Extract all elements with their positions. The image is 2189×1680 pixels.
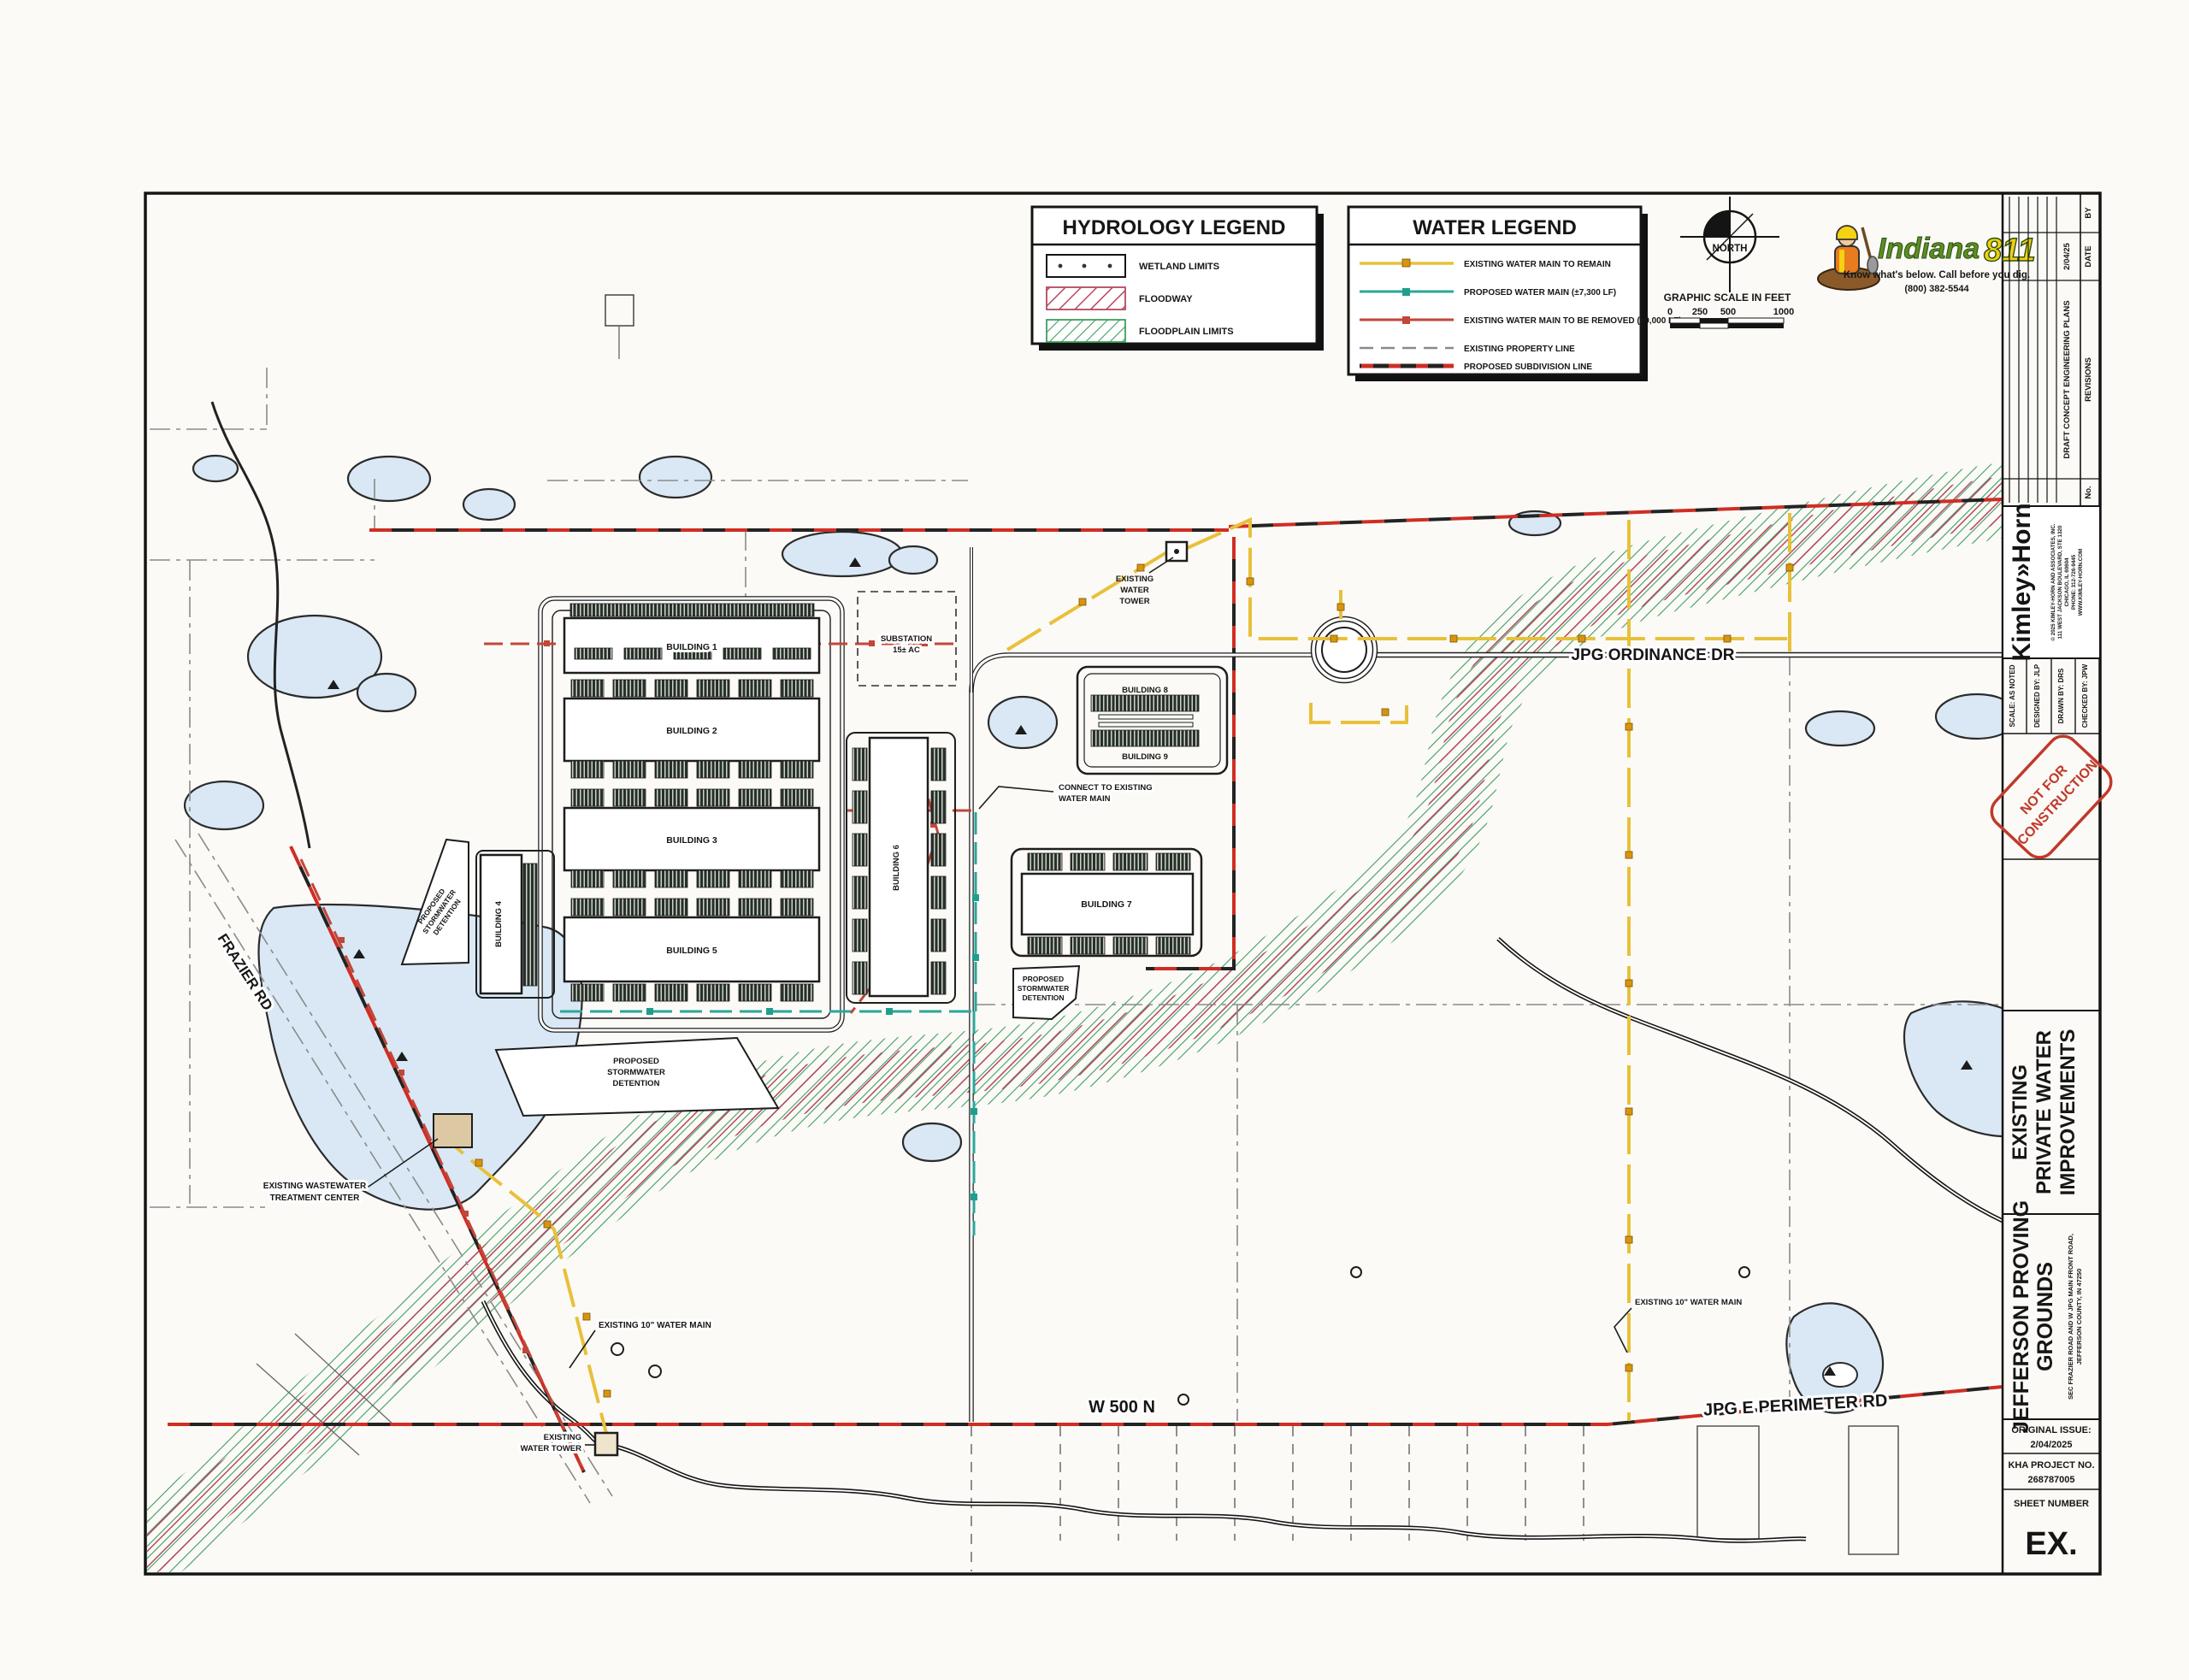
buildings [402, 542, 1749, 1455]
building-3-label: BUILDING 3 [666, 835, 717, 846]
connect-label-line1: CONNECT TO EXISTING [1059, 783, 1153, 793]
project-address-line2: JEFFERSON COUNTY, IN 47250 [2075, 1269, 2083, 1365]
project-name-line2: GROUNDS [2033, 1262, 2057, 1371]
scale-tick-0: 0 [1667, 307, 1673, 317]
scale-tick-500: 500 [1720, 307, 1736, 317]
revisions-date-header: DATE [2084, 245, 2093, 267]
wastewater-plant-symbol [434, 1114, 472, 1147]
detention-south-line3: DETENTION [613, 1079, 660, 1088]
sheet-title-line1: EXISTING [2009, 1064, 2032, 1160]
indiana811-phone: (800) 382-5544 [1904, 284, 1969, 294]
firm-logo: Kimley»Horn [2008, 503, 2036, 661]
substation-label-line2: 15± AC [893, 645, 920, 655]
field-checked: CHECKED BY: JPW [2081, 663, 2089, 728]
w500n-label: W 500 N [1089, 1398, 1155, 1417]
water-tower-bottom-symbol [595, 1433, 617, 1455]
wastewater-label-line2: TREATMENT CENTER [270, 1194, 361, 1203]
not-for-construction-stamp: NOT FOR CONSTRUCTION [1985, 730, 2117, 864]
firm-copyright: © 2025 KIMLEY-HORN AND ASSOCIATES, INC. [2050, 523, 2056, 640]
graphic-scale: GRAPHIC SCALE IN FEET 0 250 500 1000 [1664, 292, 1795, 328]
existing-10in-main-left-label: EXISTING 10" WATER MAIN [599, 1321, 711, 1330]
firm-web: WWW.KIMLEY-HORN.COM [2078, 549, 2084, 616]
water-item-subdivision: PROPOSED SUBDIVISION LINE [1464, 363, 1592, 372]
hydrology-legend-title: HYDROLOGY LEGEND [1063, 216, 1286, 239]
project-address-line1: SEC FRAZIER ROAD AND W JPG MAIN FRONT RO… [2067, 1234, 2074, 1400]
field-drawn: DRAWN BY: DRS [2057, 668, 2065, 723]
indiana811-brand: Indiana [1878, 233, 1980, 265]
water-item-proposed: PROPOSED WATER MAIN (±7,300 LF) [1464, 288, 1616, 298]
firm-address1: 111 WEST JACKSON BOULEVARD, STE 1320 [2057, 525, 2063, 639]
revisions-header: REVISIONS [2084, 357, 2093, 402]
detention-south-line1: PROPOSED [613, 1057, 659, 1066]
plan-sheet: BUILDING 1 BUILDING 2 BUILDING 3 BUILDIN… [0, 0, 2189, 1680]
project-name: JEFFERSON PROVING GROUNDS SEC FRAZIER RO… [2009, 1200, 2083, 1433]
field-scale: SCALE: AS NOTED [2009, 664, 2016, 727]
building-6-label: BUILDING 6 [892, 845, 901, 891]
building-5-label: BUILDING 5 [666, 946, 717, 956]
hydrology-item-floodway: FLOODWAY [1139, 294, 1193, 304]
sheet-title: EXISTING PRIVATE WATER IMPROVEMENTS [2009, 1029, 2080, 1196]
building-9-label: BUILDING 9 [1122, 752, 1168, 762]
field-designed: DESIGNED BY: JLP [2033, 663, 2041, 728]
detention-east-line3: DETENTION [1022, 993, 1064, 1002]
jpg-ordinance-label: JPG ORDINANCE DR [1571, 646, 1734, 664]
wastewater-label-line1: EXISTING WASTEWATER [263, 1182, 367, 1191]
scale-tick-250: 250 [1692, 307, 1708, 317]
water-tower-bottom-label-line2: WATER TOWER [521, 1444, 582, 1453]
indiana811-tagline: Know what's below. Call before you dig. [1844, 270, 2030, 280]
project-name-line1: JEFFERSON PROVING [2009, 1200, 2033, 1433]
water-item-existing: EXISTING WATER MAIN TO REMAIN [1464, 260, 1611, 269]
building-2-label: BUILDING 2 [666, 726, 717, 736]
building-8-label: BUILDING 8 [1122, 686, 1168, 695]
sheet-number-label: SHEET NUMBER [2014, 1499, 2089, 1509]
revision-entry-date: 2/04/25 [2062, 242, 2072, 269]
sheet-title-line2: PRIVATE WATER [2033, 1030, 2056, 1194]
existing-10in-main-right-label: EXISTING 10" WATER MAIN [1635, 1298, 1742, 1307]
water-legend: WATER LEGEND EXISTING WATER MAIN TO REMA… [1348, 207, 1682, 381]
hydrology-item-wetland: WETLAND LIMITS [1139, 262, 1219, 272]
kha-project-number: 268787005 [2027, 1475, 2074, 1485]
substation-label-line1: SUBSTATION [881, 634, 932, 644]
hydrology-item-floodplain: FLOODPLAIN LIMITS [1139, 327, 1234, 337]
hydrology-legend: HYDROLOGY LEGEND WETLAND LIMITS FLOODWAY… [1032, 207, 1324, 351]
water-tower-top-label-line3: TOWER [1119, 597, 1149, 606]
scale-tick-1000: 1000 [1773, 307, 1794, 317]
building-4-label: BUILDING 4 [494, 900, 504, 947]
title-block: BY DATE REVISIONS No. 2/04/25 DRAFT CONC… [1985, 193, 2117, 1562]
detention-east-line1: PROPOSED [1023, 975, 1064, 983]
detention-east-line2: STORMWATER [1018, 984, 1070, 993]
north-label: NORTH [1713, 244, 1748, 254]
water-item-property: EXISTING PROPERTY LINE [1464, 345, 1575, 354]
north-arrow: NORTH [1680, 197, 1779, 292]
jpg-e-perimeter-label: JPG E PERIMETER RD [1702, 1391, 1887, 1419]
plan-canvas: BUILDING 1 BUILDING 2 BUILDING 3 BUILDIN… [0, 0, 2189, 1680]
graphic-scale-title: GRAPHIC SCALE IN FEET [1664, 292, 1791, 304]
water-tower-top-label-line2: WATER [1120, 586, 1149, 595]
original-issue-label: ORIGINAL ISSUE: [2011, 1425, 2091, 1435]
sheet-number-value: EX. [2025, 1526, 2077, 1562]
connect-label-line2: WATER MAIN [1059, 794, 1111, 804]
building-7-label: BUILDING 7 [1081, 899, 1132, 910]
sheet-title-line3: IMPROVEMENTS [2056, 1029, 2080, 1196]
firm-phone: PHONE: 312-726-9445 [2071, 554, 2077, 610]
detention-south-line2: STORMWATER [607, 1068, 665, 1077]
water-item-removed: EXISTING WATER MAIN TO BE REMOVED (±9,00… [1464, 316, 1682, 326]
firm-address2: CHICAGO, IL 60604 [2064, 557, 2070, 607]
revision-entry: DRAFT CONCEPT ENGINEERING PLANS [2062, 300, 2072, 458]
water-tower-bottom-label-line1: EXISTING [544, 1433, 581, 1442]
building-1-label: BUILDING 1 [666, 642, 717, 652]
kha-project-label: KHA PROJECT NO. [2008, 1460, 2094, 1471]
water-tower-top-label-line1: EXISTING [1116, 575, 1154, 584]
revisions-no-header: No. [2084, 486, 2093, 498]
original-issue-date: 2/04/2025 [2031, 1440, 2073, 1450]
revisions-by-header: BY [2084, 207, 2093, 219]
water-legend-title: WATER LEGEND [1413, 216, 1577, 239]
